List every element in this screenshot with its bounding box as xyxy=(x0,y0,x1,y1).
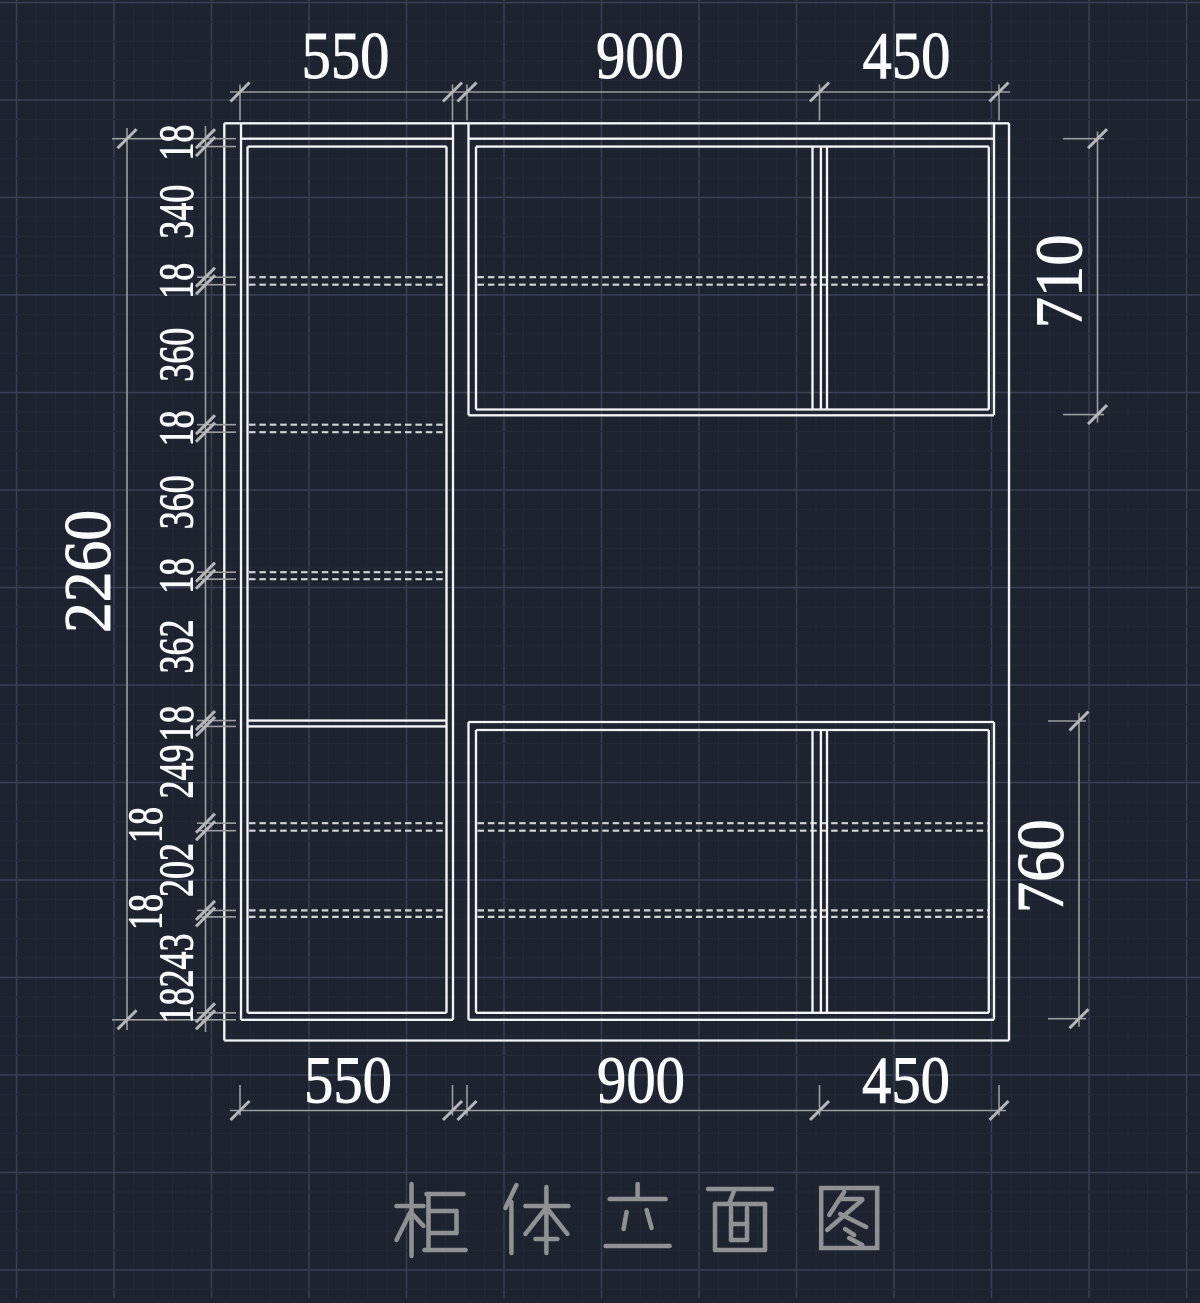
svg-text:249: 249 xyxy=(149,745,204,799)
svg-text:550: 550 xyxy=(302,19,390,93)
svg-text:360: 360 xyxy=(149,328,204,382)
svg-text:760: 760 xyxy=(1004,819,1078,913)
svg-text:450: 450 xyxy=(862,1044,950,1118)
svg-text:450: 450 xyxy=(863,19,951,93)
svg-text:202: 202 xyxy=(149,843,204,897)
svg-text:550: 550 xyxy=(304,1044,392,1118)
svg-text:18: 18 xyxy=(149,558,204,594)
svg-text:18: 18 xyxy=(149,410,204,446)
svg-text:18: 18 xyxy=(149,125,204,161)
svg-text:2260: 2260 xyxy=(51,510,125,633)
svg-text:362: 362 xyxy=(149,620,204,674)
svg-text:900: 900 xyxy=(597,1044,685,1118)
svg-text:18: 18 xyxy=(149,988,204,1024)
svg-text:710: 710 xyxy=(1023,234,1097,328)
svg-text:340: 340 xyxy=(149,185,204,239)
svg-text:360: 360 xyxy=(149,475,204,529)
svg-text:18: 18 xyxy=(149,706,204,742)
svg-text:900: 900 xyxy=(596,19,684,93)
svg-text:243: 243 xyxy=(149,934,204,988)
svg-text:18: 18 xyxy=(118,894,173,930)
svg-text:18: 18 xyxy=(118,807,173,843)
svg-text:18: 18 xyxy=(149,263,204,299)
